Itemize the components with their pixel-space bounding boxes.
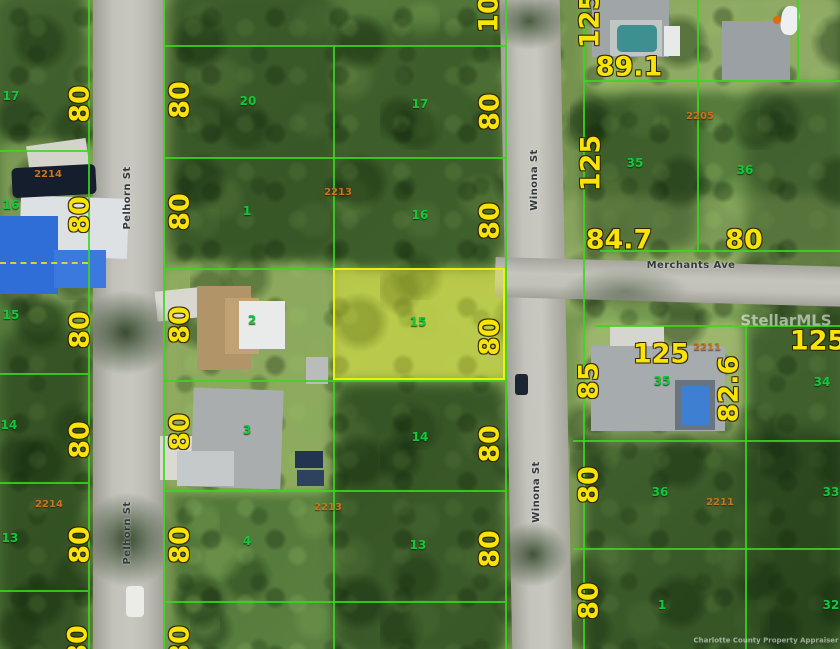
lot-line-horizontal <box>0 590 88 592</box>
car <box>126 586 144 617</box>
lot-line-vertical <box>88 0 90 649</box>
lot-line-vertical <box>797 0 799 82</box>
lot-line-horizontal <box>595 325 840 327</box>
swimming-pool <box>681 386 709 425</box>
highlighted-lot <box>333 268 505 380</box>
lot-line-horizontal <box>573 548 840 550</box>
house-roof-gray <box>177 451 234 486</box>
house-blue-tarp-roof <box>0 216 58 294</box>
lot-line-horizontal <box>583 80 840 82</box>
truck <box>297 470 324 486</box>
lot-line-horizontal <box>163 601 505 603</box>
lot-line-vertical <box>745 325 747 649</box>
lot-line-horizontal <box>573 440 840 442</box>
orange-object <box>773 16 781 24</box>
shed <box>664 26 680 56</box>
aerial-parcel-map: 8080808080808080808080801080808080801251… <box>0 0 840 649</box>
lot-line-horizontal <box>163 380 505 382</box>
car <box>11 164 96 198</box>
house-blue-tarp-roof <box>54 250 106 288</box>
road-pelhorn-st <box>93 0 165 649</box>
truck <box>295 451 323 468</box>
lot-line-horizontal <box>0 373 88 375</box>
lot-line-vertical <box>505 0 507 649</box>
lot-line-dashed <box>0 262 88 264</box>
lot-line-vertical <box>583 0 585 649</box>
lot-line-horizontal <box>163 157 505 159</box>
lot-line-horizontal <box>163 45 505 47</box>
swimming-pool <box>617 25 657 52</box>
house-roof-gray <box>722 21 790 80</box>
lot-line-horizontal <box>0 150 88 152</box>
lot-line-vertical <box>163 0 165 649</box>
garage-roof <box>239 301 285 349</box>
lot-line-vertical <box>697 0 699 252</box>
road-winona-st <box>500 0 573 649</box>
lot-line-horizontal <box>163 490 505 492</box>
car <box>515 374 528 395</box>
lawn-patch <box>560 195 840 267</box>
lot-line-horizontal <box>0 482 88 484</box>
lot-line-horizontal <box>600 250 840 252</box>
